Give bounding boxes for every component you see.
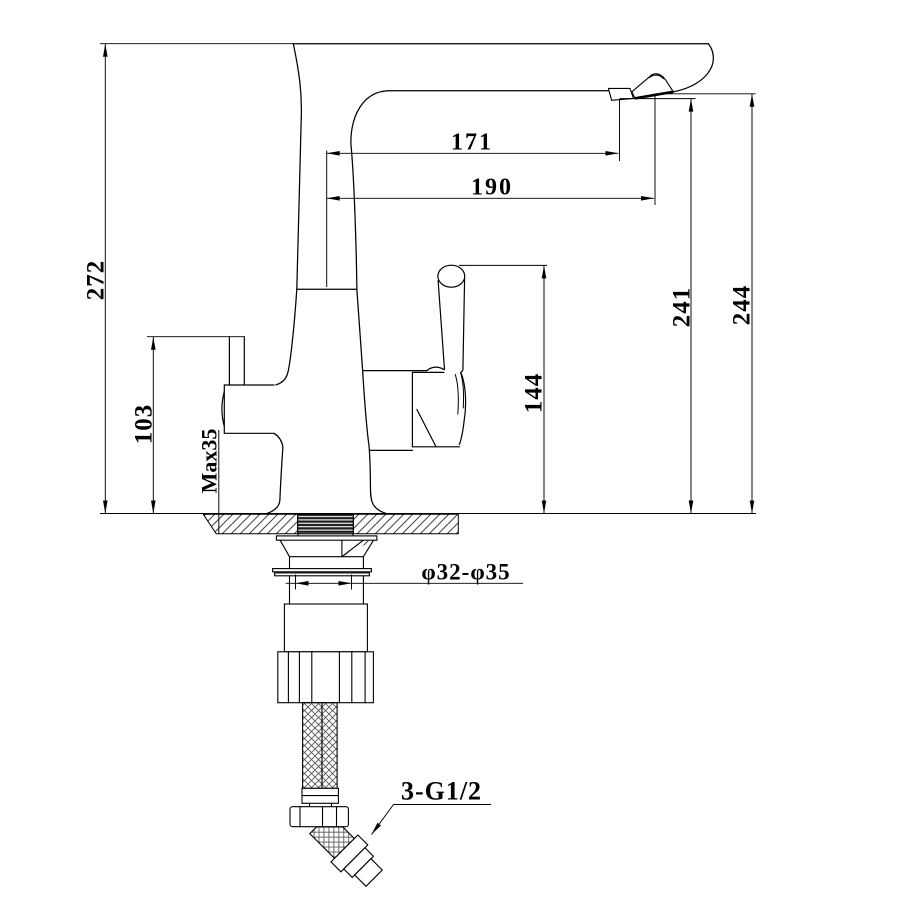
label-171: 171 bbox=[451, 130, 493, 156]
valve-housing bbox=[412, 372, 459, 446]
lock-nut bbox=[278, 652, 374, 703]
arrow-144-bottom bbox=[542, 501, 547, 514]
arrow-272-bottom bbox=[103, 501, 108, 514]
countertop bbox=[203, 514, 458, 534]
housing-highlight-1 bbox=[455, 375, 458, 415]
label-144: 144 bbox=[521, 373, 548, 414]
arrow-272-top bbox=[103, 44, 108, 57]
label-hole-diameter: φ32-φ35 bbox=[421, 560, 510, 585]
supply-hose bbox=[290, 703, 388, 892]
side-handle-stem bbox=[229, 337, 244, 385]
flange-notch bbox=[342, 540, 364, 557]
lever-right-edge bbox=[461, 278, 465, 373]
body-right-edge bbox=[357, 289, 386, 513]
label-241: 241 bbox=[669, 287, 696, 328]
faucet-outline bbox=[267, 44, 713, 514]
flange-top-band bbox=[276, 536, 377, 540]
label-272: 272 bbox=[83, 260, 110, 301]
arrow-171-right bbox=[606, 151, 619, 156]
arrow-103-bottom bbox=[151, 501, 156, 514]
arrow-190-left bbox=[327, 196, 340, 201]
arrow-171-left bbox=[327, 151, 340, 156]
label-103: 103 bbox=[131, 404, 158, 445]
lever-left-edge bbox=[438, 281, 444, 370]
mixer-handle bbox=[412, 265, 465, 447]
spout-tip-curve bbox=[673, 44, 713, 92]
drawing-page: 272 103 Max35 171 190 144 241 244 φ32-φ3… bbox=[0, 0, 907, 907]
lever-dome bbox=[427, 367, 444, 370]
body-left-lower-edge bbox=[267, 433, 283, 513]
arrow-190-right bbox=[641, 196, 654, 201]
washer-2 bbox=[275, 573, 370, 576]
arrow-hole-left bbox=[296, 581, 309, 586]
shank-lower bbox=[290, 576, 364, 604]
side-handle bbox=[222, 337, 274, 434]
spout-aerator bbox=[608, 74, 673, 101]
arrow-241-top bbox=[689, 99, 694, 112]
body-left-edge bbox=[276, 289, 297, 385]
countertop-right-section bbox=[353, 514, 458, 534]
coupling-body bbox=[284, 604, 367, 652]
hose-hex-nut bbox=[290, 807, 348, 827]
shank-upper bbox=[290, 557, 364, 569]
arrow-244-top bbox=[750, 94, 755, 107]
mounting-hardware bbox=[273, 534, 377, 703]
arrow-thread-leader bbox=[372, 823, 382, 835]
label-190: 190 bbox=[471, 175, 513, 201]
label-max35: Max35 bbox=[197, 429, 222, 494]
threaded-shank-in-hole bbox=[298, 514, 354, 534]
side-handle-body bbox=[224, 385, 274, 433]
neck-left-edge bbox=[293, 44, 301, 290]
lever-knob-top bbox=[438, 265, 465, 287]
valve-housing-diagonal bbox=[417, 410, 436, 447]
arrow-103-top bbox=[151, 337, 156, 350]
braided-hose bbox=[303, 703, 338, 789]
label-thread: 3-G1/2 bbox=[401, 777, 482, 806]
arrow-hole-right bbox=[339, 581, 352, 586]
arrow-241-bottom bbox=[689, 501, 694, 514]
arrow-144-top bbox=[542, 265, 547, 278]
faucet-dimension-drawing: 272 103 Max35 171 190 144 241 244 φ32-φ3… bbox=[0, 0, 907, 907]
dimension-labels: 272 103 Max35 171 190 144 241 244 φ32-φ3… bbox=[83, 130, 756, 806]
washer-1 bbox=[273, 569, 372, 572]
countertop-left-section bbox=[203, 514, 297, 534]
label-244: 244 bbox=[729, 285, 756, 326]
arrow-244-bottom bbox=[750, 501, 755, 514]
